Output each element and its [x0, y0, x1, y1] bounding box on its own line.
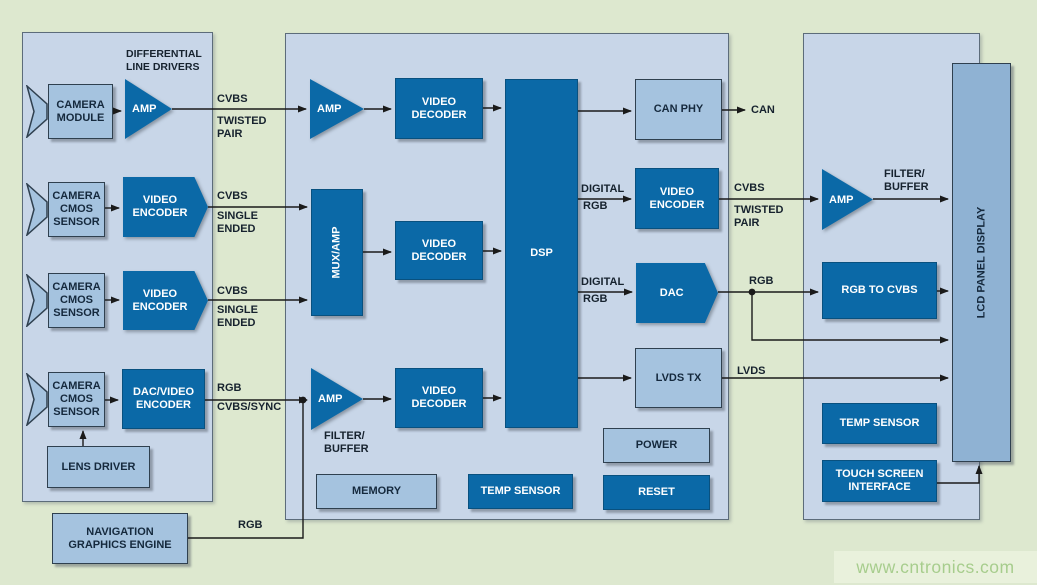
reset-box: RESET — [603, 475, 710, 510]
block-diagram: DIFFERENTIAL LINE DRIVERS CAMERA MODULE … — [0, 0, 1037, 585]
video-encoder-pentagon: VIDEO ENCODER — [123, 177, 208, 237]
signal-label: CAN — [751, 104, 775, 117]
lvds-tx-box: LVDS TX — [635, 348, 722, 408]
amp-triangle: AMP — [822, 169, 873, 230]
signal-label: CVBS — [217, 190, 248, 203]
camera-icon — [26, 274, 49, 327]
camera-icon — [26, 373, 49, 426]
temp-sensor-box: TEMP SENSOR — [468, 474, 573, 509]
signal-label: CVBS — [217, 285, 248, 298]
signal-label: SINGLE ENDED — [217, 304, 258, 329]
signal-label: LVDS — [737, 365, 766, 378]
lcd-panel-display-box: LCD PANEL DISPLAY — [952, 63, 1011, 462]
lens-driver-box: LENS DRIVER — [47, 446, 150, 488]
camera-cmos-sensor-box: CAMERA CMOS SENSOR — [48, 372, 105, 427]
video-decoder-box: VIDEO DECODER — [395, 221, 483, 280]
differential-line-drivers-label: DIFFERENTIAL LINE DRIVERS — [126, 48, 202, 74]
signal-label: CVBS/SYNC — [217, 401, 281, 414]
dac-video-encoder-box: DAC/VIDEO ENCODER — [122, 369, 205, 429]
temp-sensor-box: TEMP SENSOR — [822, 403, 937, 444]
touch-screen-interface-box: TOUCH SCREEN INTERFACE — [822, 460, 937, 502]
signal-label: RGB — [749, 275, 773, 288]
rgb-to-cvbs-box: RGB TO CVBS — [822, 262, 937, 319]
dac-pentagon: DAC — [636, 263, 718, 323]
camera-icon — [26, 183, 49, 236]
can-phy-box: CAN PHY — [635, 79, 722, 140]
filter-buffer-label: FILTER/ BUFFER — [884, 168, 929, 193]
amp-triangle: AMP — [125, 79, 172, 139]
signal-label: RGB — [583, 200, 607, 213]
signal-label: SINGLE ENDED — [217, 210, 258, 235]
filter-buffer-label: FILTER/ BUFFER — [324, 430, 369, 455]
camera-cmos-sensor-box: CAMERA CMOS SENSOR — [48, 182, 105, 237]
amp-triangle: AMP — [310, 79, 364, 139]
camera-module-box: CAMERA MODULE — [48, 84, 113, 139]
watermark: www.cntronics.com — [834, 551, 1037, 583]
video-decoder-box: VIDEO DECODER — [395, 368, 483, 428]
power-box: POWER — [603, 428, 710, 463]
video-encoder-box: VIDEO ENCODER — [635, 168, 719, 229]
camera-icon — [26, 85, 49, 138]
camera-cmos-sensor-box: CAMERA CMOS SENSOR — [48, 273, 105, 328]
navigation-graphics-engine-box: NAVIGATION GRAPHICS ENGINE — [52, 513, 188, 564]
signal-label: TWISTED PAIR — [734, 204, 784, 229]
signal-label: RGB — [217, 382, 241, 395]
signal-label: CVBS — [217, 93, 248, 106]
mux-amp-box: MUX/AMP — [311, 189, 363, 316]
signal-label: RGB — [583, 293, 607, 306]
video-decoder-box: VIDEO DECODER — [395, 78, 483, 139]
signal-label: CVBS — [734, 182, 765, 195]
video-encoder-pentagon: VIDEO ENCODER — [123, 271, 208, 330]
junction-dot — [749, 289, 756, 296]
amp-triangle: AMP — [311, 368, 363, 430]
memory-box: MEMORY — [316, 474, 437, 509]
signal-label: DIGITAL — [581, 183, 624, 196]
dsp-box: DSP — [505, 79, 578, 428]
signal-label: RGB — [238, 519, 262, 532]
signal-label: DIGITAL — [581, 276, 624, 289]
signal-label: TWISTED PAIR — [217, 115, 267, 140]
